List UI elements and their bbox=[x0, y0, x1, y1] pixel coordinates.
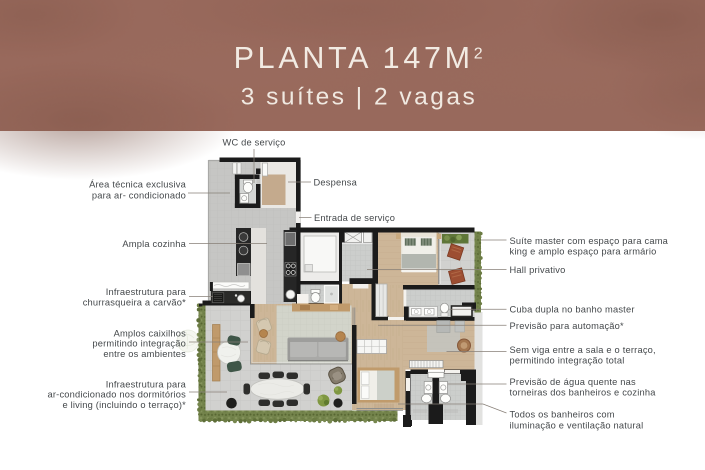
svg-text:torneiras dos banheiros e cozi: torneiras dos banheiros e cozinha bbox=[510, 388, 657, 398]
svg-text:PLANTA 147M2: PLANTA 147M2 bbox=[234, 41, 487, 75]
svg-text:iluminação e ventilação natura: iluminação e ventilação natural bbox=[510, 421, 644, 431]
svg-text:Previsão para automação*: Previsão para automação* bbox=[510, 321, 625, 331]
svg-text:WC de serviço: WC de serviço bbox=[222, 138, 285, 148]
svg-text:Despensa: Despensa bbox=[314, 178, 358, 188]
svg-text:Amplos caixilhos: Amplos caixilhos bbox=[114, 328, 187, 338]
svg-text:churrasqueira a carvão*: churrasqueira a carvão* bbox=[83, 298, 186, 308]
svg-text:entre os ambientes: entre os ambientes bbox=[103, 349, 186, 359]
svg-text:e living (incluindo o terraço): e living (incluindo o terraço)* bbox=[62, 400, 186, 410]
svg-text:Sem viga entre a sala e o terr: Sem viga entre a sala e o terraço, bbox=[510, 345, 656, 355]
svg-text:Suíte master com espaço para c: Suíte master com espaço para cama bbox=[510, 236, 669, 246]
svg-text:Todos os banheiros com: Todos os banheiros com bbox=[510, 410, 615, 420]
svg-text:ar-condicionado nos dormitório: ar-condicionado nos dormitórios bbox=[48, 390, 187, 400]
svg-text:Previsão de água quente nas: Previsão de água quente nas bbox=[510, 377, 637, 387]
svg-text:king e amplo espaço para armár: king e amplo espaço para armário bbox=[510, 247, 657, 257]
svg-text:3 suítes | 2 vagas: 3 suítes | 2 vagas bbox=[241, 84, 478, 111]
svg-text:para ar- condicionado: para ar- condicionado bbox=[92, 191, 186, 201]
svg-text:Infraestrutura para: Infraestrutura para bbox=[106, 287, 187, 297]
svg-text:Entrada de serviço: Entrada de serviço bbox=[314, 213, 395, 223]
svg-text:Ampla cozinha: Ampla cozinha bbox=[122, 239, 186, 249]
svg-text:Área técnica exclusiva: Área técnica exclusiva bbox=[89, 180, 187, 190]
svg-text:Hall privativo: Hall privativo bbox=[510, 265, 566, 275]
svg-text:Cuba dupla no banho master: Cuba dupla no banho master bbox=[510, 305, 635, 315]
svg-text:permitindo integração total: permitindo integração total bbox=[510, 356, 625, 366]
svg-text:Infraestrutura para: Infraestrutura para bbox=[106, 379, 187, 389]
svg-text:permitindo integração: permitindo integração bbox=[92, 339, 186, 349]
